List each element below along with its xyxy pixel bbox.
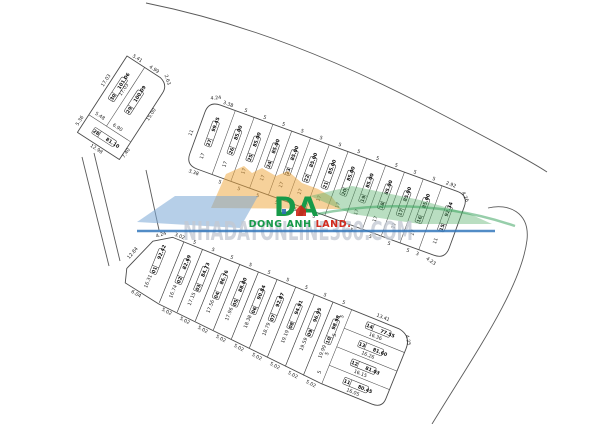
dimension-label: 4.24 bbox=[210, 95, 221, 102]
brand-name-green: DONG ANH bbox=[249, 219, 312, 230]
brand-blue-mark-icon bbox=[282, 209, 286, 214]
brand-name: DONG ANH LAND. bbox=[249, 219, 352, 230]
site-plan-map: 30101.0629100.092881.105.414.992.6317.03… bbox=[0, 0, 600, 424]
brand-name-red: LAND. bbox=[312, 219, 352, 230]
